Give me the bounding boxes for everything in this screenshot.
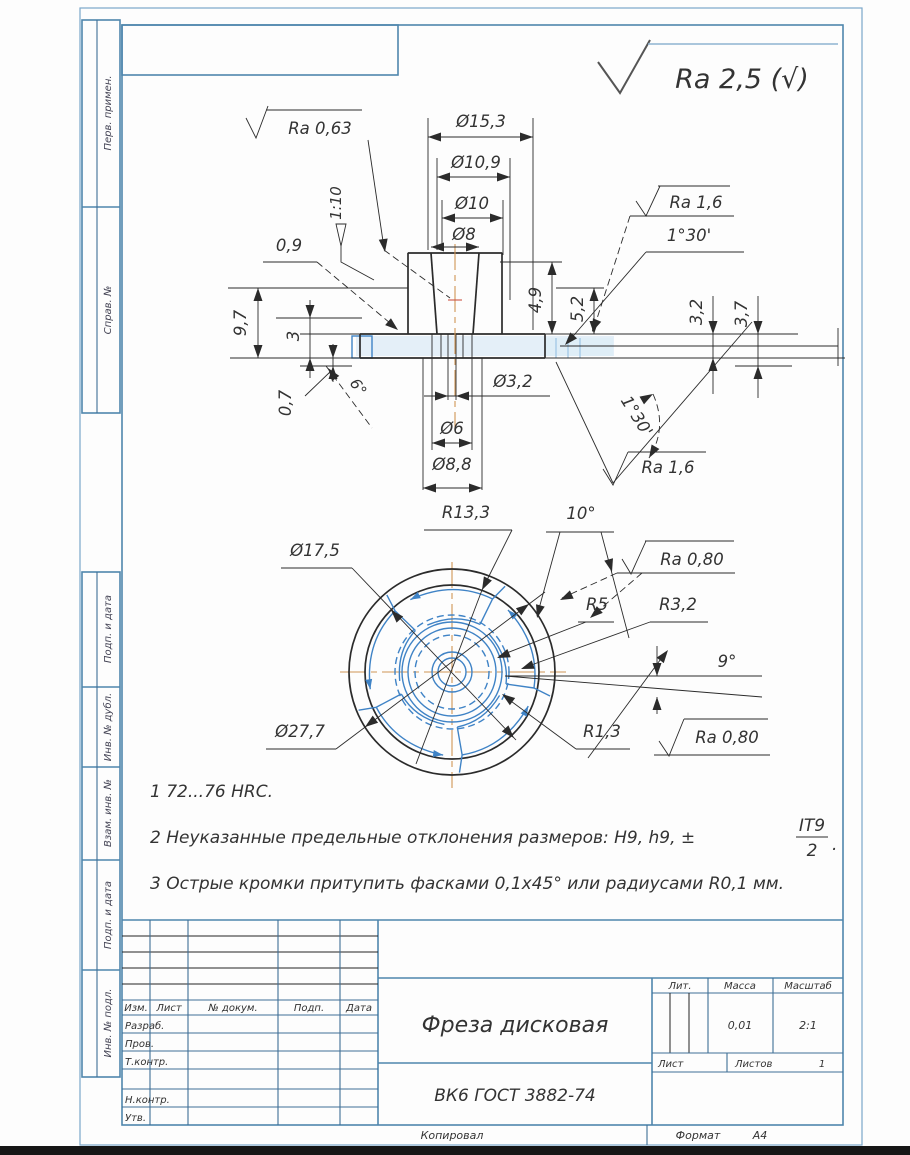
value-sheets: 1: [819, 1059, 825, 1070]
header-docum: № докум.: [207, 1003, 257, 1014]
dim-a130-bot: 1°30': [617, 392, 657, 440]
row-razrab: Разраб.: [125, 1020, 164, 1032]
dim-r5: R5: [586, 595, 608, 614]
bottom-strip: Копировал Формат А4: [421, 1125, 768, 1145]
header-data: Дата: [345, 1003, 372, 1014]
label-kopiroval: Копировал: [421, 1129, 484, 1142]
row-nkontr: Н.контр.: [125, 1095, 170, 1106]
note-2: 2 Неуказанные предельные отклонения разм…: [150, 828, 695, 848]
value-format: А4: [752, 1129, 768, 1142]
label-scale: Масштаб: [784, 980, 832, 992]
dim-a10: 10°: [566, 504, 595, 523]
margin-label-inv-podl: Инв. № подл.: [103, 989, 114, 1058]
drawing-sheet: Перв. примен. Справ. № Подп. и дата Инв.…: [0, 0, 910, 1155]
dim-d6: Ø6: [439, 419, 464, 438]
general-roughness-mark: Ra 2,5 (√): [598, 40, 838, 95]
dim-a6: 6°: [346, 375, 371, 399]
label-format: Формат: [676, 1129, 721, 1142]
header-list: Лист: [155, 1003, 183, 1014]
label-sheets: Листов: [734, 1059, 772, 1070]
dim-d88: Ø8,8: [431, 455, 471, 474]
dim-ra16-top: Ra 1,6: [669, 193, 722, 212]
title-block: Изм. Лист № докум. Подп. Дата Разраб. Пр…: [122, 920, 843, 1125]
note-2-fraction-numerator: IT9: [799, 816, 825, 836]
label-mass: Масса: [724, 981, 756, 992]
dim-ra063: Ra 0,63: [288, 119, 352, 138]
label-sheet: Лист: [657, 1059, 685, 1070]
general-roughness-text: Ra 2,5 (√): [675, 64, 809, 95]
note-1: 1 72...76 HRC.: [150, 782, 273, 802]
margin-label-perv-primen: Перв. примен.: [103, 75, 114, 150]
value-scale: 2:1: [799, 1019, 817, 1032]
drawing-canvas: Перв. примен. Справ. № Подп. и дата Инв.…: [0, 0, 910, 1155]
dim-ra080-top: Ra 0,80: [660, 550, 724, 569]
dim-ra080-bot: Ra 0,80: [695, 728, 759, 747]
front-view-dimensions: R13,3 10° Ra 0,80 Ø17,5 R5 R3,2: [266, 503, 770, 764]
row-prov: Пров.: [125, 1039, 154, 1050]
note-3: 3 Острые кромки притупить фасками 0,1х45…: [150, 874, 784, 894]
margin-label-vzam-inv: Взам. инв. №: [103, 779, 114, 847]
dim-taper: 1:10: [327, 186, 345, 220]
dim-d175: Ø17,5: [289, 541, 340, 560]
dim-h3: 3: [284, 331, 303, 342]
dim-d109: Ø10,9: [450, 153, 501, 172]
dim-d32: Ø3,2: [492, 372, 532, 391]
dim-a130-top: 1°30': [667, 226, 711, 245]
dim-r133: R13,3: [442, 503, 490, 522]
row-tkontr: Т.контр.: [125, 1057, 168, 1068]
note-2-period: .: [832, 835, 837, 855]
dim-d8: Ø8: [451, 225, 476, 244]
label-lit: Лит.: [667, 981, 691, 992]
dim-d277: Ø27,7: [274, 722, 325, 741]
dim-h49: 4,9: [526, 287, 545, 313]
header-izm: Изм.: [124, 1003, 148, 1014]
dim-c09: 0,9: [276, 236, 302, 255]
header-podp: Подп.: [294, 1003, 324, 1014]
note-2-fraction-denominator: 2: [807, 841, 818, 861]
dim-d153: Ø15,3: [455, 112, 506, 131]
margin-label-inv-dubl: Инв. № дубл.: [102, 693, 114, 761]
margin-label-podp-data-2: Подп. и дата: [103, 881, 114, 949]
part-title: Фреза дисковая: [422, 1013, 609, 1038]
dim-d10: Ø10: [454, 194, 489, 213]
part-material: ВК6 ГОСТ 3882-74: [434, 1086, 596, 1106]
dim-r13: R1,3: [583, 722, 621, 741]
dim-ra16-bot: Ra 1,6: [641, 458, 694, 477]
dim-h37: 3,7: [732, 300, 751, 327]
dim-r32: R3,2: [659, 595, 697, 614]
dim-h52: 5,2: [568, 296, 587, 322]
margin-label-podp-data-1: Подп. и дата: [103, 595, 114, 663]
dim-a9: 9°: [718, 652, 737, 671]
section-dimensions: Ra 0,63 Ø15,3 Ø10,9 Ø10 Ø8 1:10 0,9 Ra 1…: [231, 106, 792, 493]
row-utv: Утв.: [125, 1113, 146, 1124]
dim-h97: 9,7: [231, 309, 250, 336]
technical-notes: 1 72...76 HRC. 2 Неуказанные предельные …: [150, 782, 837, 894]
margin-column: Перв. примен. Справ. № Подп. и дата Инв.…: [82, 20, 120, 1077]
dim-h32: 3,2: [687, 299, 706, 325]
dim-h07: 0,7: [276, 389, 295, 416]
value-mass: 0,01: [728, 1019, 753, 1032]
margin-label-sprav-no: Справ. №: [103, 286, 114, 335]
